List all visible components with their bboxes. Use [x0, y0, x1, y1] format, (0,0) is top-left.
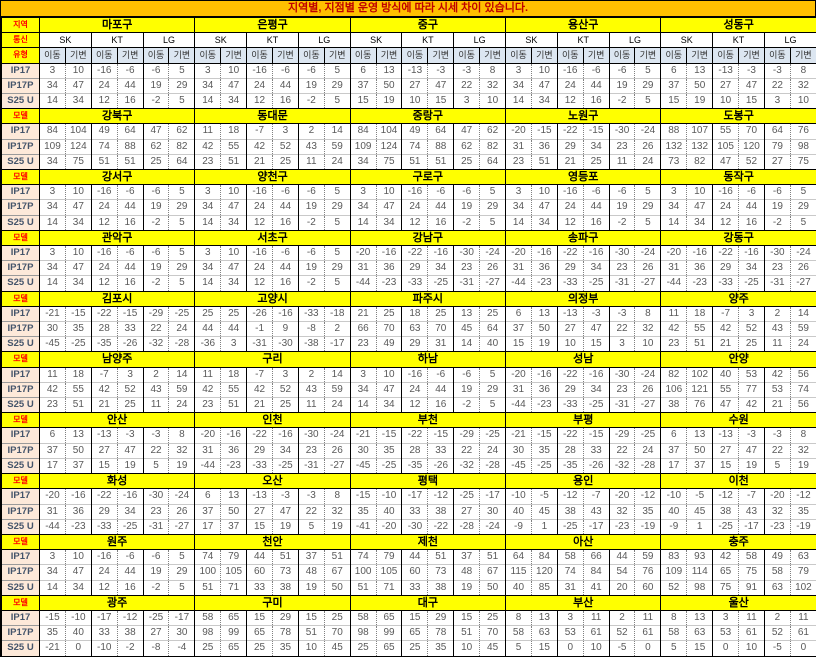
price-cell: 29 — [402, 337, 428, 352]
price-cell: 34 — [221, 94, 247, 109]
price-cell: 44 — [583, 78, 609, 93]
price-cell: 53 — [713, 626, 739, 641]
subtype-header: 이동 — [764, 48, 790, 63]
price-cell: 44 — [117, 261, 143, 276]
price-cell: 61 — [739, 626, 765, 641]
price-cell: 19 — [298, 580, 324, 595]
price-cell: 132 — [661, 139, 687, 154]
price-cell: -6 — [609, 63, 635, 78]
price-cell: 34 — [583, 382, 609, 397]
price-cell: 58 — [195, 610, 221, 625]
model-label: S25 U — [2, 154, 40, 169]
price-cell: 75 — [65, 154, 91, 169]
price-cell: -20 — [506, 246, 532, 261]
price-cell: 30 — [169, 626, 195, 641]
price-cell: 2 — [298, 367, 324, 382]
region-header: 대구 — [350, 595, 505, 610]
price-cell: -9 — [506, 519, 532, 534]
price-cell: 51 — [221, 154, 247, 169]
price-cell: -17 — [402, 489, 428, 504]
price-cell: 47 — [65, 261, 91, 276]
price-cell: 12 — [91, 215, 117, 230]
region-header: 천안 — [195, 534, 350, 549]
price-cell: 47 — [376, 382, 402, 397]
price-cell: -44 — [195, 458, 221, 473]
price-cell: 25 — [480, 610, 506, 625]
price-cell: 105 — [221, 565, 247, 580]
price-cell: 3 — [117, 367, 143, 382]
price-cell: 10 — [557, 337, 583, 352]
price-cell: 45 — [480, 641, 506, 656]
price-cell: 93 — [687, 550, 713, 565]
price-cell: 5 — [324, 185, 350, 200]
price-cell: 26 — [635, 261, 661, 276]
price-cell: -22 — [557, 428, 583, 443]
price-cell: -33 — [298, 306, 324, 321]
price-cell: 2 — [298, 124, 324, 139]
price-cell: 8 — [635, 306, 661, 321]
price-cell: 37 — [350, 78, 376, 93]
price-cell: 32 — [480, 78, 506, 93]
price-cell: -17 — [583, 519, 609, 534]
price-cell: 67 — [324, 565, 350, 580]
price-cell: -24 — [790, 246, 816, 261]
price-cell: -25 — [428, 276, 454, 291]
price-cell: -15 — [428, 428, 454, 443]
price-cell: 18 — [65, 367, 91, 382]
price-cell: -2 — [143, 94, 169, 109]
price-cell: 31 — [428, 337, 454, 352]
price-cell: 82 — [480, 139, 506, 154]
price-cell: 109 — [350, 139, 376, 154]
price-cell: 33 — [247, 580, 273, 595]
price-cell: 15 — [247, 519, 273, 534]
price-cell: -20 — [40, 489, 66, 504]
price-cell: 24 — [91, 200, 117, 215]
price-cell: -25 — [583, 276, 609, 291]
price-cell: 42 — [247, 139, 273, 154]
price-cell: 104 — [376, 124, 402, 139]
price-cell: -2 — [298, 215, 324, 230]
price-cell: -24 — [169, 489, 195, 504]
price-cell: 10 — [65, 246, 91, 261]
price-cell: -15 — [531, 428, 557, 443]
price-cell: 15 — [661, 94, 687, 109]
price-cell: 120 — [739, 139, 765, 154]
price-cell: -17 — [480, 489, 506, 504]
price-cell: 21 — [350, 306, 376, 321]
price-cell: 17 — [40, 458, 66, 473]
price-cell: 27 — [91, 443, 117, 458]
region-header: 은평구 — [195, 18, 350, 33]
price-cell: 36 — [221, 443, 247, 458]
price-cell: 77 — [739, 382, 765, 397]
price-cell: -6 — [428, 185, 454, 200]
price-cell: 13 — [687, 63, 713, 78]
price-cell: -16 — [91, 550, 117, 565]
price-cell: 15 — [402, 610, 428, 625]
price-cell: 47 — [531, 200, 557, 215]
price-cell: 12 — [402, 398, 428, 413]
price-cell: 25 — [350, 641, 376, 656]
price-cell: 25 — [324, 610, 350, 625]
price-cell: 5 — [764, 458, 790, 473]
price-cell: -3 — [609, 306, 635, 321]
price-cell: -6 — [117, 185, 143, 200]
price-cell: 53 — [557, 626, 583, 641]
price-cell: -30 — [402, 519, 428, 534]
price-cell: 98 — [687, 580, 713, 595]
price-cell: 63 — [402, 322, 428, 337]
price-cell: -16 — [402, 367, 428, 382]
price-cell: 12 — [402, 215, 428, 230]
region-header: 제천 — [350, 534, 505, 549]
price-cell: 14 — [40, 215, 66, 230]
subtype-header: 기변 — [273, 48, 299, 63]
price-cell: 38 — [713, 504, 739, 519]
price-cell: 102 — [790, 580, 816, 595]
price-cell: 16 — [117, 94, 143, 109]
price-cell: 10 — [221, 246, 247, 261]
price-cell: -6 — [273, 63, 299, 78]
price-cell: 50 — [376, 78, 402, 93]
price-cell: -2 — [298, 276, 324, 291]
price-cell: 11 — [195, 124, 221, 139]
price-cell: 70 — [480, 626, 506, 641]
price-cell: -6 — [764, 185, 790, 200]
price-cell: 14 — [40, 276, 66, 291]
price-cell: 19 — [298, 200, 324, 215]
price-cell: -16 — [247, 185, 273, 200]
model-label: IP17P — [2, 200, 40, 215]
price-cell: 64 — [480, 154, 506, 169]
price-cell: 44 — [117, 200, 143, 215]
price-cell: 82 — [661, 367, 687, 382]
price-cell: 52 — [117, 382, 143, 397]
price-cell: -15 — [40, 610, 66, 625]
price-cell: -25 — [480, 428, 506, 443]
price-cell: 30 — [480, 504, 506, 519]
subtype-header: 이동 — [609, 48, 635, 63]
price-cell: 34 — [65, 215, 91, 230]
price-cell: 34 — [506, 200, 532, 215]
price-cell: 3 — [40, 246, 66, 261]
price-cell: 11 — [143, 398, 169, 413]
price-cell: 45 — [324, 641, 350, 656]
price-cell: 28 — [91, 322, 117, 337]
price-cell: -17 — [91, 610, 117, 625]
price-cell: 47 — [583, 322, 609, 337]
price-cell: -15 — [583, 124, 609, 139]
price-cell: 59 — [635, 550, 661, 565]
price-cell: 43 — [298, 139, 324, 154]
price-cell: 36 — [531, 261, 557, 276]
price-cell: 37 — [65, 458, 91, 473]
price-cell: 85 — [531, 580, 557, 595]
price-cell: 61 — [790, 626, 816, 641]
price-cell: 15 — [298, 610, 324, 625]
price-cell: 63 — [764, 580, 790, 595]
price-cell: -44 — [506, 398, 532, 413]
price-cell: 13 — [454, 306, 480, 321]
price-cell: 15 — [531, 641, 557, 656]
price-cell: 44 — [609, 550, 635, 565]
price-cell: 24 — [247, 200, 273, 215]
price-cell: 29 — [169, 261, 195, 276]
price-cell: -45 — [40, 337, 66, 352]
price-cell: 15 — [687, 641, 713, 656]
region-header: 충주 — [661, 534, 816, 549]
price-cell: 62 — [454, 139, 480, 154]
price-cell: 24 — [635, 154, 661, 169]
region-header: 고양시 — [195, 291, 350, 306]
price-cell: 5 — [661, 641, 687, 656]
price-cell: 73 — [273, 565, 299, 580]
subtype-header: 기변 — [376, 48, 402, 63]
price-cell: 6 — [350, 63, 376, 78]
price-cell: 3 — [350, 185, 376, 200]
price-cell: 3 — [609, 337, 635, 352]
price-cell: -20 — [609, 489, 635, 504]
price-cell: 58 — [739, 550, 765, 565]
price-cell: -6 — [428, 367, 454, 382]
price-cell: 24 — [169, 322, 195, 337]
price-cell: 3 — [350, 367, 376, 382]
price-cell: -25 — [454, 489, 480, 504]
price-cell: 14 — [506, 215, 532, 230]
price-cell: 24 — [635, 443, 661, 458]
price-cell: 22 — [764, 78, 790, 93]
price-cell: 32 — [764, 504, 790, 519]
price-cell: 34 — [40, 261, 66, 276]
price-cell: -6 — [454, 185, 480, 200]
price-cell: 16 — [583, 215, 609, 230]
price-cell: -6 — [273, 246, 299, 261]
price-cell: 29 — [91, 504, 117, 519]
price-cell: 23 — [609, 382, 635, 397]
price-cell: 14 — [195, 94, 221, 109]
price-cell: -26 — [428, 458, 454, 473]
model-label: S25 U — [2, 580, 40, 595]
price-cell: 47 — [65, 565, 91, 580]
price-cell: 50 — [324, 580, 350, 595]
model-label: S25 U — [2, 276, 40, 291]
price-cell: 10 — [65, 185, 91, 200]
subtype-header: 이동 — [40, 48, 66, 63]
price-cell: 17 — [661, 458, 687, 473]
carrier-header: SK — [40, 33, 92, 48]
price-cell: 15 — [428, 94, 454, 109]
price-cell: 5 — [790, 215, 816, 230]
price-cell: 29 — [635, 200, 661, 215]
price-cell: 29 — [557, 261, 583, 276]
price-cell: 66 — [350, 322, 376, 337]
price-cell: 50 — [687, 78, 713, 93]
price-cell: 48 — [454, 565, 480, 580]
region-header: 강북구 — [40, 109, 195, 124]
price-cell: 21 — [247, 154, 273, 169]
price-cell: 79 — [764, 139, 790, 154]
price-cell: 36 — [531, 139, 557, 154]
price-cell: -2 — [609, 215, 635, 230]
price-cell: -15 — [65, 306, 91, 321]
price-cell: 115 — [506, 565, 532, 580]
price-cell: 75 — [376, 154, 402, 169]
price-cell: 3 — [739, 306, 765, 321]
price-cell: 8 — [506, 610, 532, 625]
price-cell: 52 — [739, 154, 765, 169]
price-cell: -22 — [428, 519, 454, 534]
price-cell: 40 — [713, 367, 739, 382]
price-cell: 59 — [790, 322, 816, 337]
price-cell: 5 — [324, 94, 350, 109]
price-cell: 51 — [195, 580, 221, 595]
price-cell: 48 — [298, 565, 324, 580]
price-cell: 37 — [661, 78, 687, 93]
price-cell: -22 — [91, 489, 117, 504]
price-cell: 10 — [687, 185, 713, 200]
price-cell: 55 — [221, 382, 247, 397]
price-cell: 12 — [557, 215, 583, 230]
price-cell: 73 — [661, 154, 687, 169]
subtype-header: 이동 — [143, 48, 169, 63]
price-cell: -30 — [609, 367, 635, 382]
price-cell: 25 — [247, 641, 273, 656]
price-cell: -6 — [298, 246, 324, 261]
subtype-header: 기변 — [687, 48, 713, 63]
price-cell: 61 — [583, 626, 609, 641]
price-cell: 67 — [480, 565, 506, 580]
price-cell: 0 — [635, 641, 661, 656]
price-cell: -6 — [298, 63, 324, 78]
price-cell: 24 — [480, 443, 506, 458]
price-cell: -13 — [402, 63, 428, 78]
price-cell: -7 — [91, 367, 117, 382]
price-cell: 9 — [273, 322, 299, 337]
price-cell: -31 — [609, 276, 635, 291]
price-cell: -22 — [402, 428, 428, 443]
model-label: S25 U — [2, 519, 40, 534]
price-cell: -26 — [117, 337, 143, 352]
model-label: S25 U — [2, 458, 40, 473]
price-cell: 60 — [635, 580, 661, 595]
price-cell: -31 — [609, 398, 635, 413]
model-label: IP17 — [2, 489, 40, 504]
price-cell: -29 — [143, 306, 169, 321]
price-cell: 10 — [376, 367, 402, 382]
price-cell: 11 — [583, 610, 609, 625]
price-cell: 34 — [40, 565, 66, 580]
carrier-header: SK — [350, 33, 402, 48]
price-cell: 104 — [65, 124, 91, 139]
price-cell: 0 — [790, 641, 816, 656]
price-cell: 10 — [298, 641, 324, 656]
price-cell: 16 — [428, 215, 454, 230]
price-cell: -5 — [609, 641, 635, 656]
price-cell: -6 — [583, 63, 609, 78]
price-cell: -21 — [506, 428, 532, 443]
region-header: 양천구 — [195, 170, 350, 185]
price-cell: 44 — [117, 565, 143, 580]
price-cell: 15 — [583, 337, 609, 352]
model-label: IP17P — [2, 382, 40, 397]
price-cell: 12 — [557, 94, 583, 109]
region-header: 성남 — [506, 352, 661, 367]
price-cell: 0 — [65, 641, 91, 656]
price-cell: -3 — [454, 63, 480, 78]
price-cell: 24 — [557, 78, 583, 93]
region-header: 강서구 — [40, 170, 195, 185]
price-cell: 44 — [117, 78, 143, 93]
price-cell: 24 — [247, 261, 273, 276]
price-cell: 47 — [454, 124, 480, 139]
price-cell: 14 — [324, 367, 350, 382]
price-cell: -25 — [557, 519, 583, 534]
price-cell: 55 — [713, 124, 739, 139]
price-cell: 2 — [764, 610, 790, 625]
price-cell: 35 — [376, 443, 402, 458]
price-cell: 44 — [739, 200, 765, 215]
carrier-header: SK — [661, 33, 713, 48]
price-cell: -7 — [247, 124, 273, 139]
price-cell: 2 — [143, 367, 169, 382]
price-cell: 0 — [713, 641, 739, 656]
corner-label: 모델 — [2, 230, 40, 245]
price-cell: 44 — [273, 200, 299, 215]
price-cell: 64 — [506, 550, 532, 565]
price-cell: -16 — [273, 306, 299, 321]
price-cell: 31 — [661, 261, 687, 276]
price-cell: 5 — [324, 215, 350, 230]
price-cell: 15 — [91, 458, 117, 473]
price-cell: 47 — [221, 261, 247, 276]
price-cell: -25 — [169, 306, 195, 321]
price-cell: 71 — [376, 580, 402, 595]
price-cell: 5 — [169, 246, 195, 261]
price-cell: 33 — [402, 580, 428, 595]
price-cell: 42 — [739, 398, 765, 413]
price-cell: 10 — [635, 337, 661, 352]
price-cell: 54 — [609, 565, 635, 580]
price-cell: 23 — [661, 337, 687, 352]
price-cell: 5 — [635, 185, 661, 200]
price-cell: 25 — [376, 306, 402, 321]
price-cell: -12 — [790, 489, 816, 504]
price-cell: 47 — [117, 443, 143, 458]
price-cell: 19 — [298, 78, 324, 93]
price-cell: -3 — [117, 428, 143, 443]
price-cell: 5 — [790, 185, 816, 200]
price-cell: 50 — [221, 504, 247, 519]
price-cell: 43 — [739, 504, 765, 519]
price-cell: -20 — [195, 428, 221, 443]
price-cell: 44 — [247, 550, 273, 565]
price-cell: -15 — [583, 428, 609, 443]
price-cell: 5 — [480, 398, 506, 413]
price-cell: 35 — [428, 641, 454, 656]
notice-text: 지역별, 지점별 운영 방식에 따라 시세 차이 있습니다. — [288, 2, 528, 14]
region-header: 구미 — [195, 595, 350, 610]
price-cell: 16 — [273, 94, 299, 109]
price-cell: 1 — [531, 519, 557, 534]
model-label: IP17P — [2, 78, 40, 93]
price-cell: -16 — [687, 246, 713, 261]
price-cell: 37 — [221, 519, 247, 534]
model-label: S25 U — [2, 337, 40, 352]
price-cell: -44 — [506, 276, 532, 291]
price-cell: 76 — [687, 398, 713, 413]
model-label: S25 U — [2, 398, 40, 413]
